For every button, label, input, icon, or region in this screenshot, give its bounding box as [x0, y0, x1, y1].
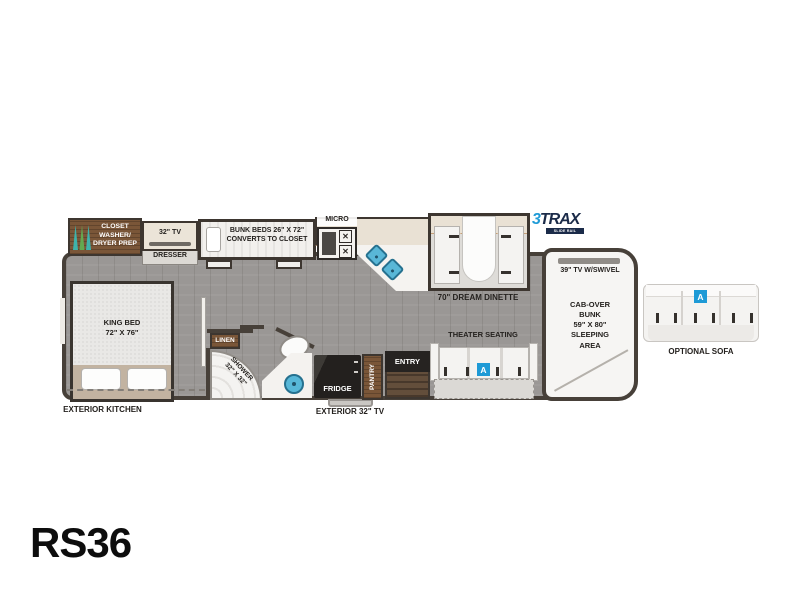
exterior-tv-label: EXTERIOR 32" TV — [300, 407, 400, 417]
tv32-cabinet: 32" TV — [142, 221, 198, 251]
fridge-handle — [354, 371, 358, 373]
bench-arm — [501, 271, 511, 274]
dinette-bench — [498, 226, 524, 284]
king-bed-label: KING BED 72" X 76" — [73, 318, 171, 337]
dinette-label: 70" DREAM DINETTE — [408, 293, 548, 303]
burner-icon: ✕ — [339, 230, 352, 243]
dinette-bench — [434, 226, 460, 284]
optional-sofa-label: OPTIONAL SOFA — [643, 347, 759, 357]
option-a-badge: A — [694, 290, 707, 303]
seatbelt-post — [694, 313, 697, 323]
bath-wall-stub — [240, 325, 264, 329]
cab-section: 39" TV W/SWIVEL CAB-OVER BUNK 59" X 80" … — [542, 248, 638, 401]
theater-armrest — [529, 343, 538, 381]
bench-arm — [501, 235, 511, 238]
tv32-label: 32" TV — [144, 229, 196, 238]
range-stove: ✕ ✕ — [317, 227, 357, 260]
sink-drain — [390, 269, 394, 273]
seatbelt-post — [674, 313, 677, 323]
exterior-tv-mount — [328, 399, 373, 407]
theater-footrest — [434, 379, 534, 399]
dresser-label: DRESSER — [138, 252, 202, 261]
swivel-tv — [558, 258, 620, 264]
cup-holder — [444, 367, 447, 376]
dinette-slide — [428, 213, 530, 291]
bunk-pillow — [206, 227, 221, 252]
seatbelt-post — [750, 313, 753, 323]
theater-seating: A — [430, 341, 538, 399]
sofa-cushion-divider — [681, 291, 683, 325]
tv32-screen — [149, 242, 191, 246]
king-bed: KING BED 72" X 76" — [70, 281, 174, 402]
bed-pillow — [127, 368, 167, 390]
theater-seat-divider — [500, 348, 503, 378]
seatbelt-post — [732, 313, 735, 323]
tv39-label: 39" TV W/SWIVEL — [546, 267, 634, 276]
dinette-table — [462, 216, 496, 282]
closet-washer-dryer-cabinet: CLOSET WASHER/ DRYER PREP — [68, 218, 142, 256]
pantry-label: PANTRY — [364, 356, 381, 398]
burner-icon: ✕ — [339, 245, 352, 258]
linen-label: LINEN — [212, 337, 238, 345]
floorplan-page: { "model": "RS36", "logo": { "three": "3… — [0, 0, 800, 600]
3trax-logo-word: TRAX — [540, 211, 580, 228]
fridge-label: FRIDGE — [314, 384, 361, 394]
cup-holder — [518, 367, 521, 376]
option-a-badge: A — [477, 363, 490, 376]
seatbelt-post — [712, 313, 715, 323]
theater-seating-label: THEATER SEATING — [424, 330, 542, 340]
3trax-logo-numeral: 3 — [532, 211, 540, 228]
bed-pillow — [81, 368, 121, 390]
oven — [322, 232, 336, 255]
bunk-beds-label: BUNK BEDS 26" X 72" CONVERTS TO CLOSET — [223, 227, 311, 245]
fridge: FRIDGE — [314, 355, 361, 398]
entry-door: ENTRY — [385, 351, 430, 372]
pantry-cabinet: PANTRY — [362, 354, 383, 400]
window-gap-left — [60, 298, 65, 344]
entry-steps — [385, 372, 430, 399]
sofa-cushion-divider — [719, 291, 721, 325]
clothes-hangers-icon — [72, 223, 92, 253]
fridge-handle — [354, 361, 358, 363]
cab-windshield-line — [554, 349, 628, 391]
bunk-step — [206, 260, 232, 269]
seatbelt-post — [656, 313, 659, 323]
bench-arm — [449, 271, 459, 274]
3trax-logo: 3TRAX SLIDE RAIL SYSTEM — [532, 212, 588, 238]
exterior-kitchen-label: EXTERIOR KITCHEN — [40, 405, 165, 415]
bench-arm — [449, 235, 459, 238]
micro-label: MICRO — [317, 216, 357, 225]
bath-sink — [284, 374, 304, 394]
cup-holder — [466, 367, 469, 376]
closet-label: CLOSET WASHER/ DRYER PREP — [90, 223, 140, 249]
bunk-beds: BUNK BEDS 26" X 72" CONVERTS TO CLOSET — [198, 219, 316, 260]
sink-drain — [374, 255, 378, 259]
bed-slide-dashed-line — [67, 389, 205, 391]
model-name: RS36 — [30, 516, 230, 570]
bunk-step — [276, 260, 302, 269]
cup-holder — [496, 367, 499, 376]
optional-sofa: A — [643, 284, 759, 344]
bath-sink-drain — [292, 382, 296, 386]
sofa-seat-front — [648, 325, 754, 341]
3trax-logo-tagline: SLIDE RAIL SYSTEM — [546, 228, 584, 234]
entry-label: ENTRY — [395, 357, 420, 367]
cab-over-bunk-label: CAB-OVER BUNK 59" X 80" SLEEPING AREA — [546, 300, 634, 351]
theater-armrest — [430, 343, 439, 381]
